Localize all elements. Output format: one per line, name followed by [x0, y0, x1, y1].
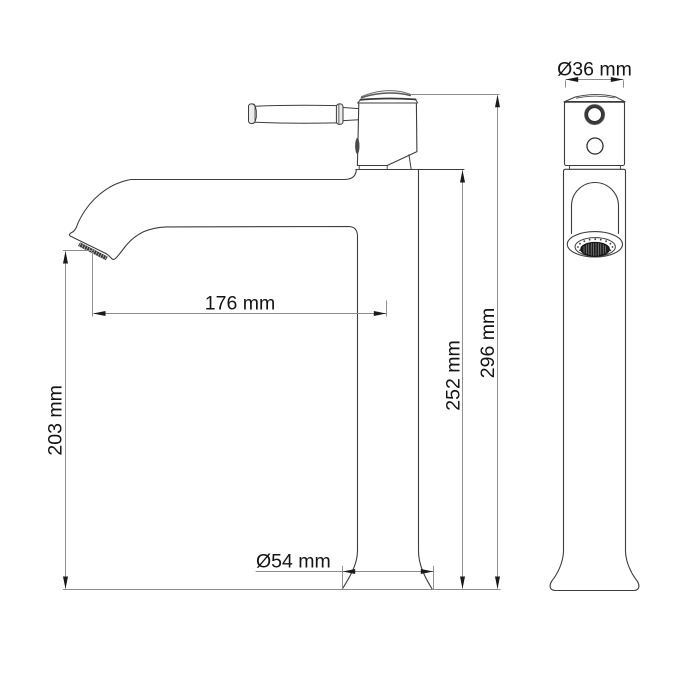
svg-text:176 mm: 176 mm: [205, 293, 275, 315]
svg-text:296 mm: 296 mm: [477, 308, 499, 378]
svg-text:Ø54 mm: Ø54 mm: [256, 551, 331, 573]
svg-text:Ø36 mm: Ø36 mm: [557, 59, 632, 81]
svg-text:203 mm: 203 mm: [45, 385, 67, 455]
svg-text:252 mm: 252 mm: [443, 340, 465, 410]
